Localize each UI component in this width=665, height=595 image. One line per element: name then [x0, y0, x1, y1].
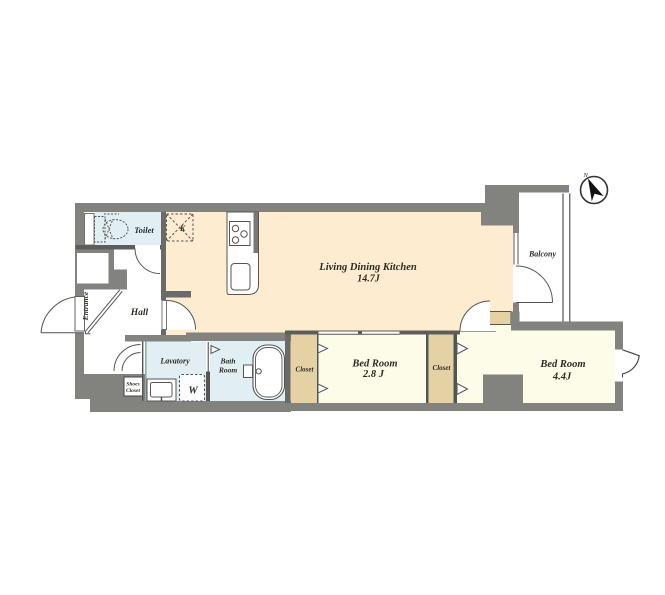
svg-text:Room: Room: [218, 366, 238, 375]
svg-text:4.4J: 4.4J: [552, 372, 572, 383]
svg-text:Entrance: Entrance: [81, 291, 90, 321]
svg-text:Bed Room: Bed Room: [539, 359, 585, 370]
svg-text:Closet: Closet: [296, 366, 315, 374]
svg-text:K: K: [179, 224, 186, 233]
svg-text:Closet: Closet: [126, 388, 141, 394]
svg-text:Bed Room: Bed Room: [351, 359, 397, 370]
svg-text:2.8 J: 2.8 J: [362, 369, 385, 380]
svg-text:Balcony: Balcony: [528, 250, 557, 259]
svg-text:W: W: [188, 386, 198, 397]
svg-text:Hall: Hall: [130, 308, 149, 318]
svg-text:N: N: [583, 172, 589, 179]
svg-text:Toilet: Toilet: [134, 225, 154, 235]
svg-text:Lavatory: Lavatory: [159, 357, 190, 366]
svg-text:Living Dining Kitchen: Living Dining Kitchen: [318, 262, 417, 273]
svg-text:Shoes: Shoes: [126, 382, 139, 388]
svg-text:Bath: Bath: [219, 357, 235, 366]
svg-text:14.7J: 14.7J: [357, 274, 381, 285]
svg-text:Closet: Closet: [433, 364, 452, 372]
